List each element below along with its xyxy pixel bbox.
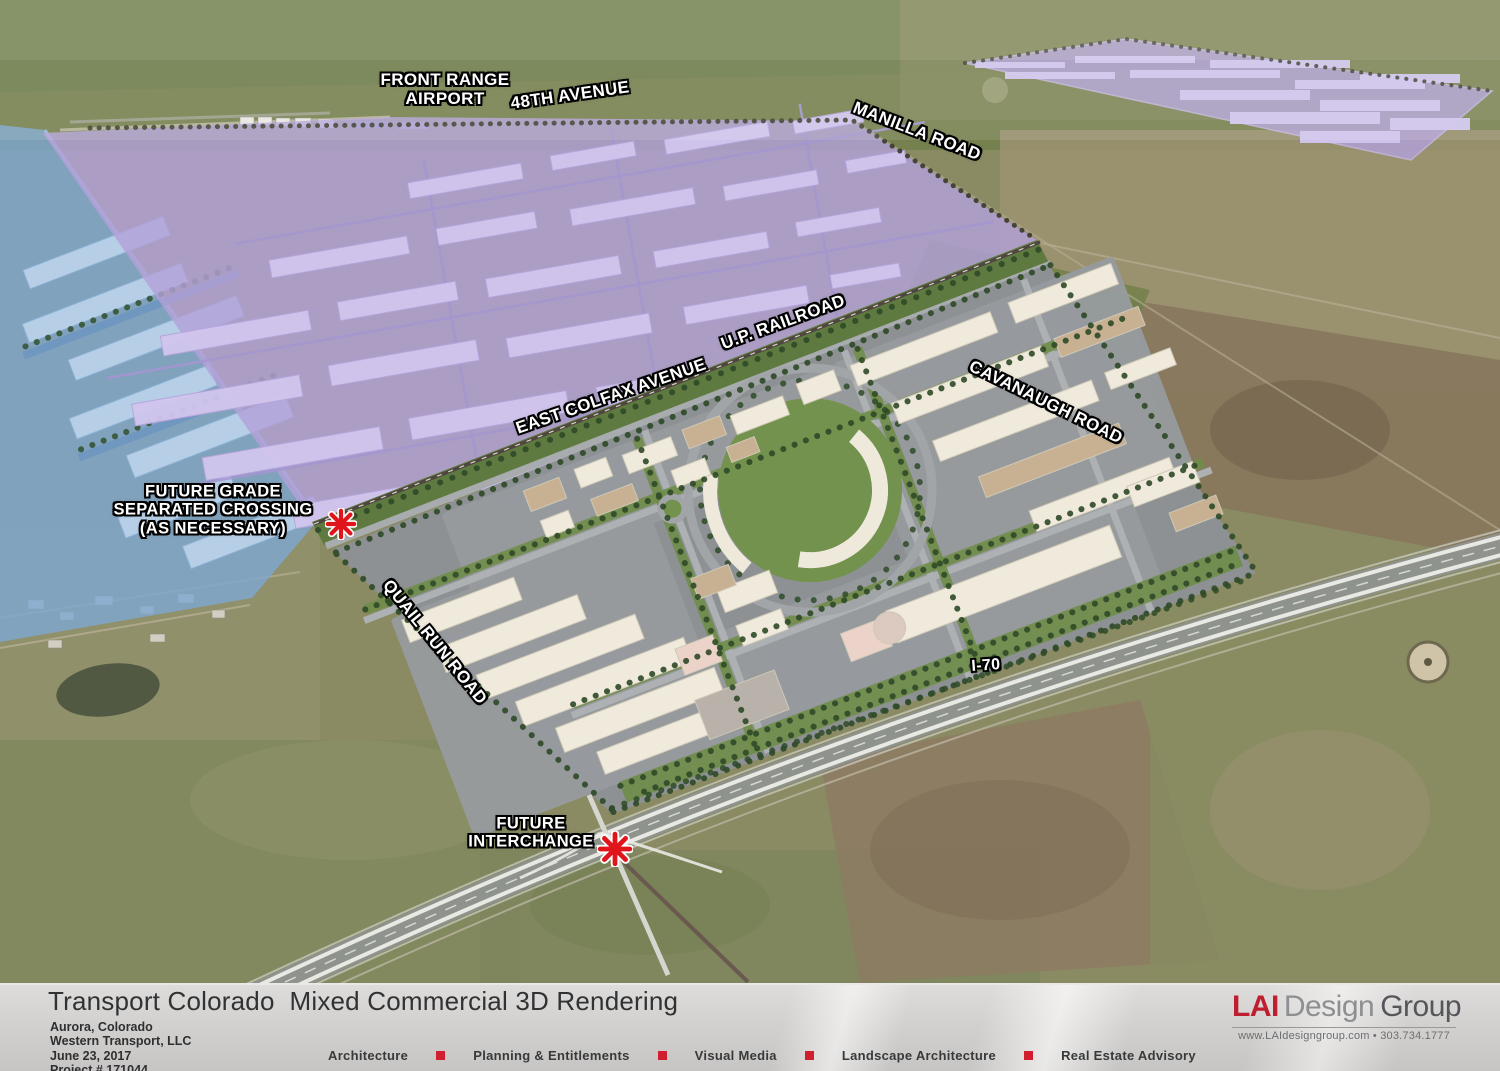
logo-contact: www.LAIdesigngroup.com • 303.734.1777 xyxy=(1232,1030,1456,1042)
service-architecture: Architecture xyxy=(328,1048,408,1063)
red-square-separator-icon xyxy=(805,1051,814,1060)
label-future-interchange: FUTURE INTERCHANGE xyxy=(468,815,593,852)
service-landscape: Landscape Architecture xyxy=(842,1048,996,1063)
red-square-separator-icon xyxy=(1024,1051,1033,1060)
service-planning: Planning & Entitlements xyxy=(473,1048,629,1063)
logo-design: Design xyxy=(1284,990,1374,1023)
title-bar: Transport Colorado Mixed Commercial 3D R… xyxy=(0,983,1500,1071)
project-number: Project # 171044 xyxy=(50,1063,191,1071)
rendering-page: FRONT RANGE AIRPORT 48TH AVENUE MANILLA … xyxy=(0,0,1500,1071)
label-front-range-airport: FRONT RANGE AIRPORT xyxy=(380,70,509,108)
page-title: Transport Colorado Mixed Commercial 3D R… xyxy=(48,986,678,1017)
project-info: Aurora, Colorado Western Transport, LLC … xyxy=(50,1020,191,1071)
service-visual-media: Visual Media xyxy=(695,1048,777,1063)
red-square-separator-icon xyxy=(658,1051,667,1060)
project-client: Western Transport, LLC xyxy=(50,1034,191,1048)
project-location: Aurora, Colorado xyxy=(50,1020,191,1034)
red-square-separator-icon xyxy=(436,1051,445,1060)
services-list: Architecture Planning & Entitlements Vis… xyxy=(328,1048,1196,1063)
label-i70: I-70 xyxy=(971,656,1001,676)
lai-design-group-logo: LAIDesignGroup www.LAIdesigngroup.com • … xyxy=(1232,990,1456,1042)
logo-rule xyxy=(1232,1027,1456,1028)
aerial-3d-rendering: FRONT RANGE AIRPORT 48TH AVENUE MANILLA … xyxy=(0,0,1500,983)
logo-group: Group xyxy=(1380,990,1461,1023)
logo-lai: LAI xyxy=(1232,990,1279,1023)
service-real-estate: Real Estate Advisory xyxy=(1061,1048,1196,1063)
project-date: June 23, 2017 xyxy=(50,1049,191,1063)
label-future-grade-separated-crossing: FUTURE GRADE SEPARATED CROSSING (AS NECE… xyxy=(113,482,312,537)
